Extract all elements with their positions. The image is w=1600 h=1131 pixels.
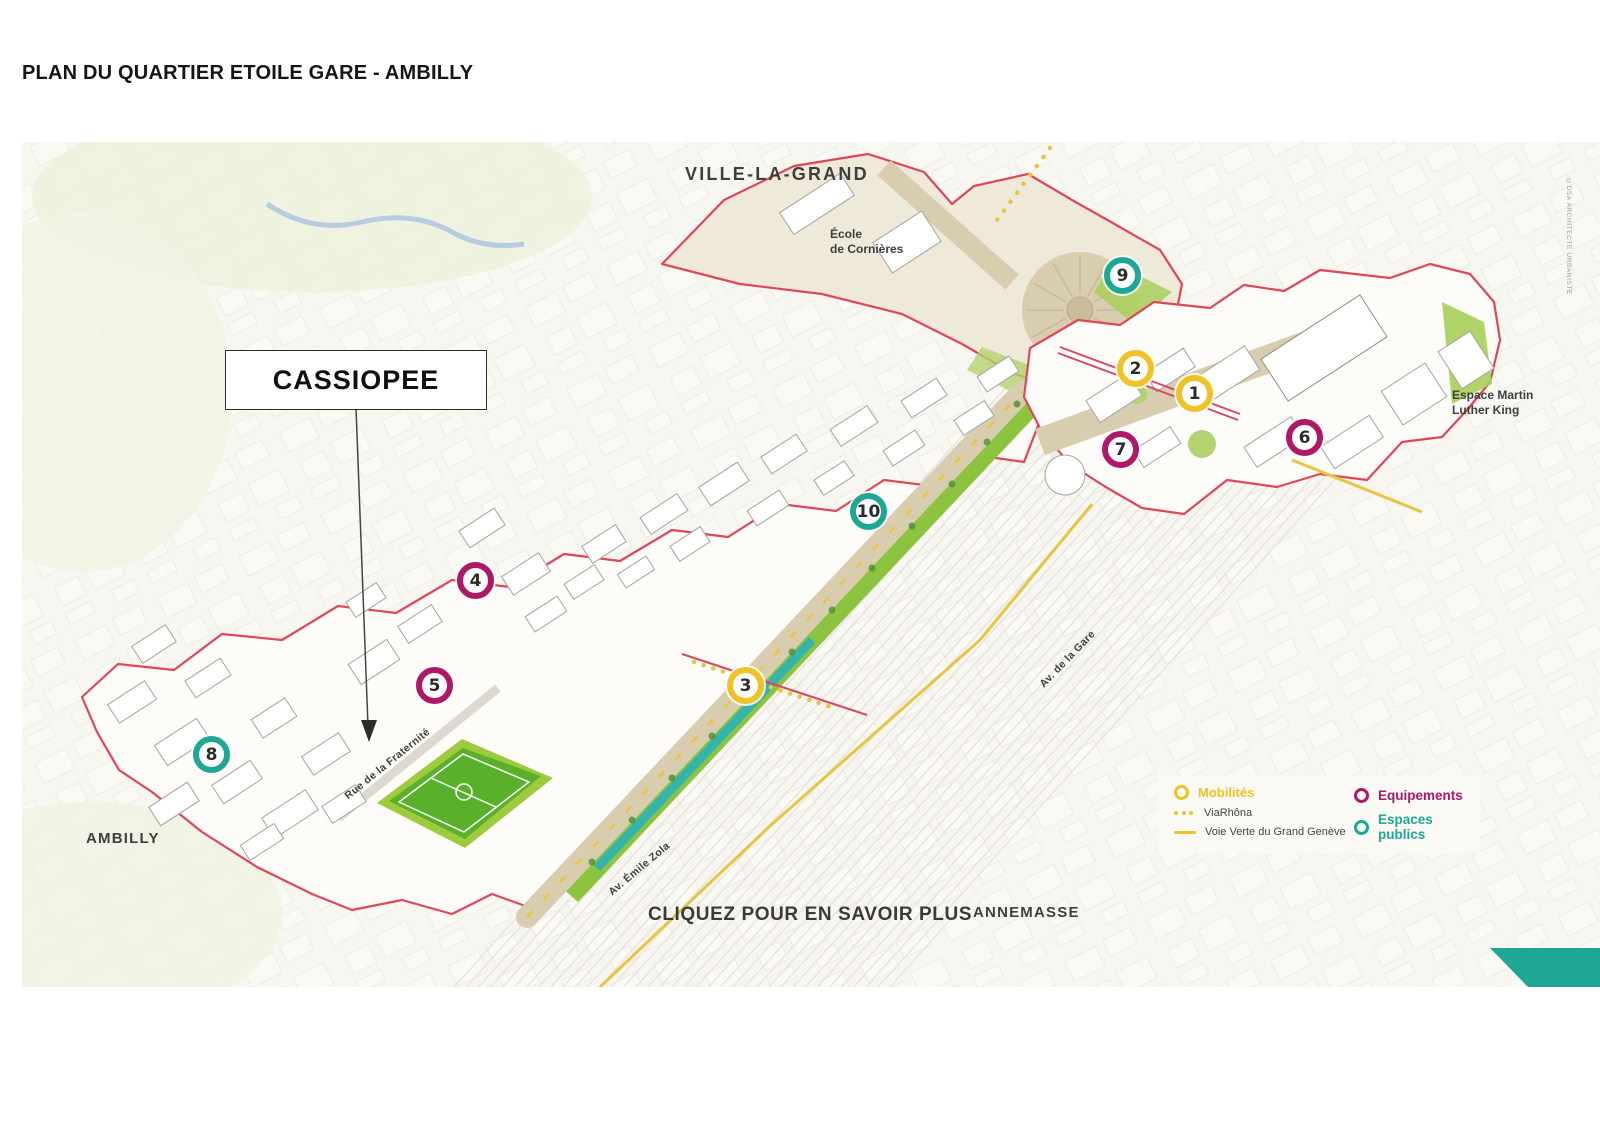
label-ambilly: AMBILLY xyxy=(86,830,160,847)
map-illustration xyxy=(22,142,1600,987)
marker-number: 4 xyxy=(470,571,482,591)
marker-5[interactable]: 5 xyxy=(416,667,453,704)
marker-number: 7 xyxy=(1115,440,1127,460)
marker-10[interactable]: 10 xyxy=(850,493,887,530)
marker-8[interactable]: 8 xyxy=(193,736,230,773)
legend-label: Mobilités xyxy=(1198,785,1254,800)
cylindrical-building xyxy=(1045,455,1085,495)
label-ville-la-grand: VILLE-LA-GRAND xyxy=(685,164,869,185)
marker-number: 5 xyxy=(429,676,441,696)
legend-label: Equipements xyxy=(1378,788,1463,803)
legend-item-equipements: Equipements xyxy=(1354,788,1480,803)
legend-label: Espaces publics xyxy=(1378,812,1480,842)
map-legend: Mobilités ViaRhôna Voie Verte du Grand G… xyxy=(1158,776,1480,854)
legend-label: ViaRhôna xyxy=(1204,807,1252,819)
ecole-line2: de Cornières xyxy=(830,242,903,257)
mobilites-circle-icon xyxy=(1174,785,1189,800)
marker-7[interactable]: 7 xyxy=(1102,431,1139,468)
voie-verte-line-icon xyxy=(1174,831,1196,834)
legend-item-voie-verte: Voie Verte du Grand Genève xyxy=(1174,826,1346,838)
marker-9[interactable]: 9 xyxy=(1104,257,1141,294)
cassiopee-label: CASSIOPEE xyxy=(273,365,440,396)
page-title: PLAN DU QUARTIER ETOILE GARE - AMBILLY xyxy=(22,62,473,85)
marker-4[interactable]: 4 xyxy=(457,562,494,599)
credit-text: ©DSA ARCHITECTE URBANISTE xyxy=(1565,178,1572,295)
marker-number: 8 xyxy=(206,745,218,765)
marker-3[interactable]: 3 xyxy=(727,667,764,704)
marker-number: 3 xyxy=(740,676,752,696)
cassiopee-callout[interactable]: CASSIOPEE xyxy=(225,350,487,410)
cta-text: CLIQUEZ POUR EN SAVOIR PLUS xyxy=(648,904,972,926)
label-ecole-de-cornieres: École de Cornières xyxy=(830,227,903,257)
legend-label: Voie Verte du Grand Genève xyxy=(1205,826,1346,838)
label-annemasse: ANNEMASSE xyxy=(973,904,1080,921)
marker-number: 10 xyxy=(857,502,881,522)
marker-number: 2 xyxy=(1130,359,1142,379)
marker-1[interactable]: 1 xyxy=(1176,375,1213,412)
equipements-circle-icon xyxy=(1354,788,1369,803)
ecole-line1: École xyxy=(830,227,903,242)
mlk-line1: Espace Martin xyxy=(1452,388,1533,403)
label-espace-mlk: Espace Martin Luther King xyxy=(1452,388,1533,418)
legend-item-viarhona: ViaRhôna xyxy=(1174,807,1346,819)
legend-item-mobilites: Mobilités xyxy=(1174,785,1346,800)
marker-number: 9 xyxy=(1117,266,1129,286)
quartier-map[interactable]: VILLE-LA-GRAND École de Cornières Espace… xyxy=(22,142,1600,987)
marker-2[interactable]: 2 xyxy=(1117,350,1154,387)
marker-number: 6 xyxy=(1299,428,1311,448)
viarhona-dotted-icon xyxy=(1174,811,1195,815)
marker-number: 1 xyxy=(1189,384,1201,404)
marker-6[interactable]: 6 xyxy=(1286,419,1323,456)
mlk-line2: Luther King xyxy=(1452,403,1533,418)
legend-item-espaces-publics: Espaces publics xyxy=(1354,812,1480,842)
espaces-publics-circle-icon xyxy=(1354,820,1369,835)
